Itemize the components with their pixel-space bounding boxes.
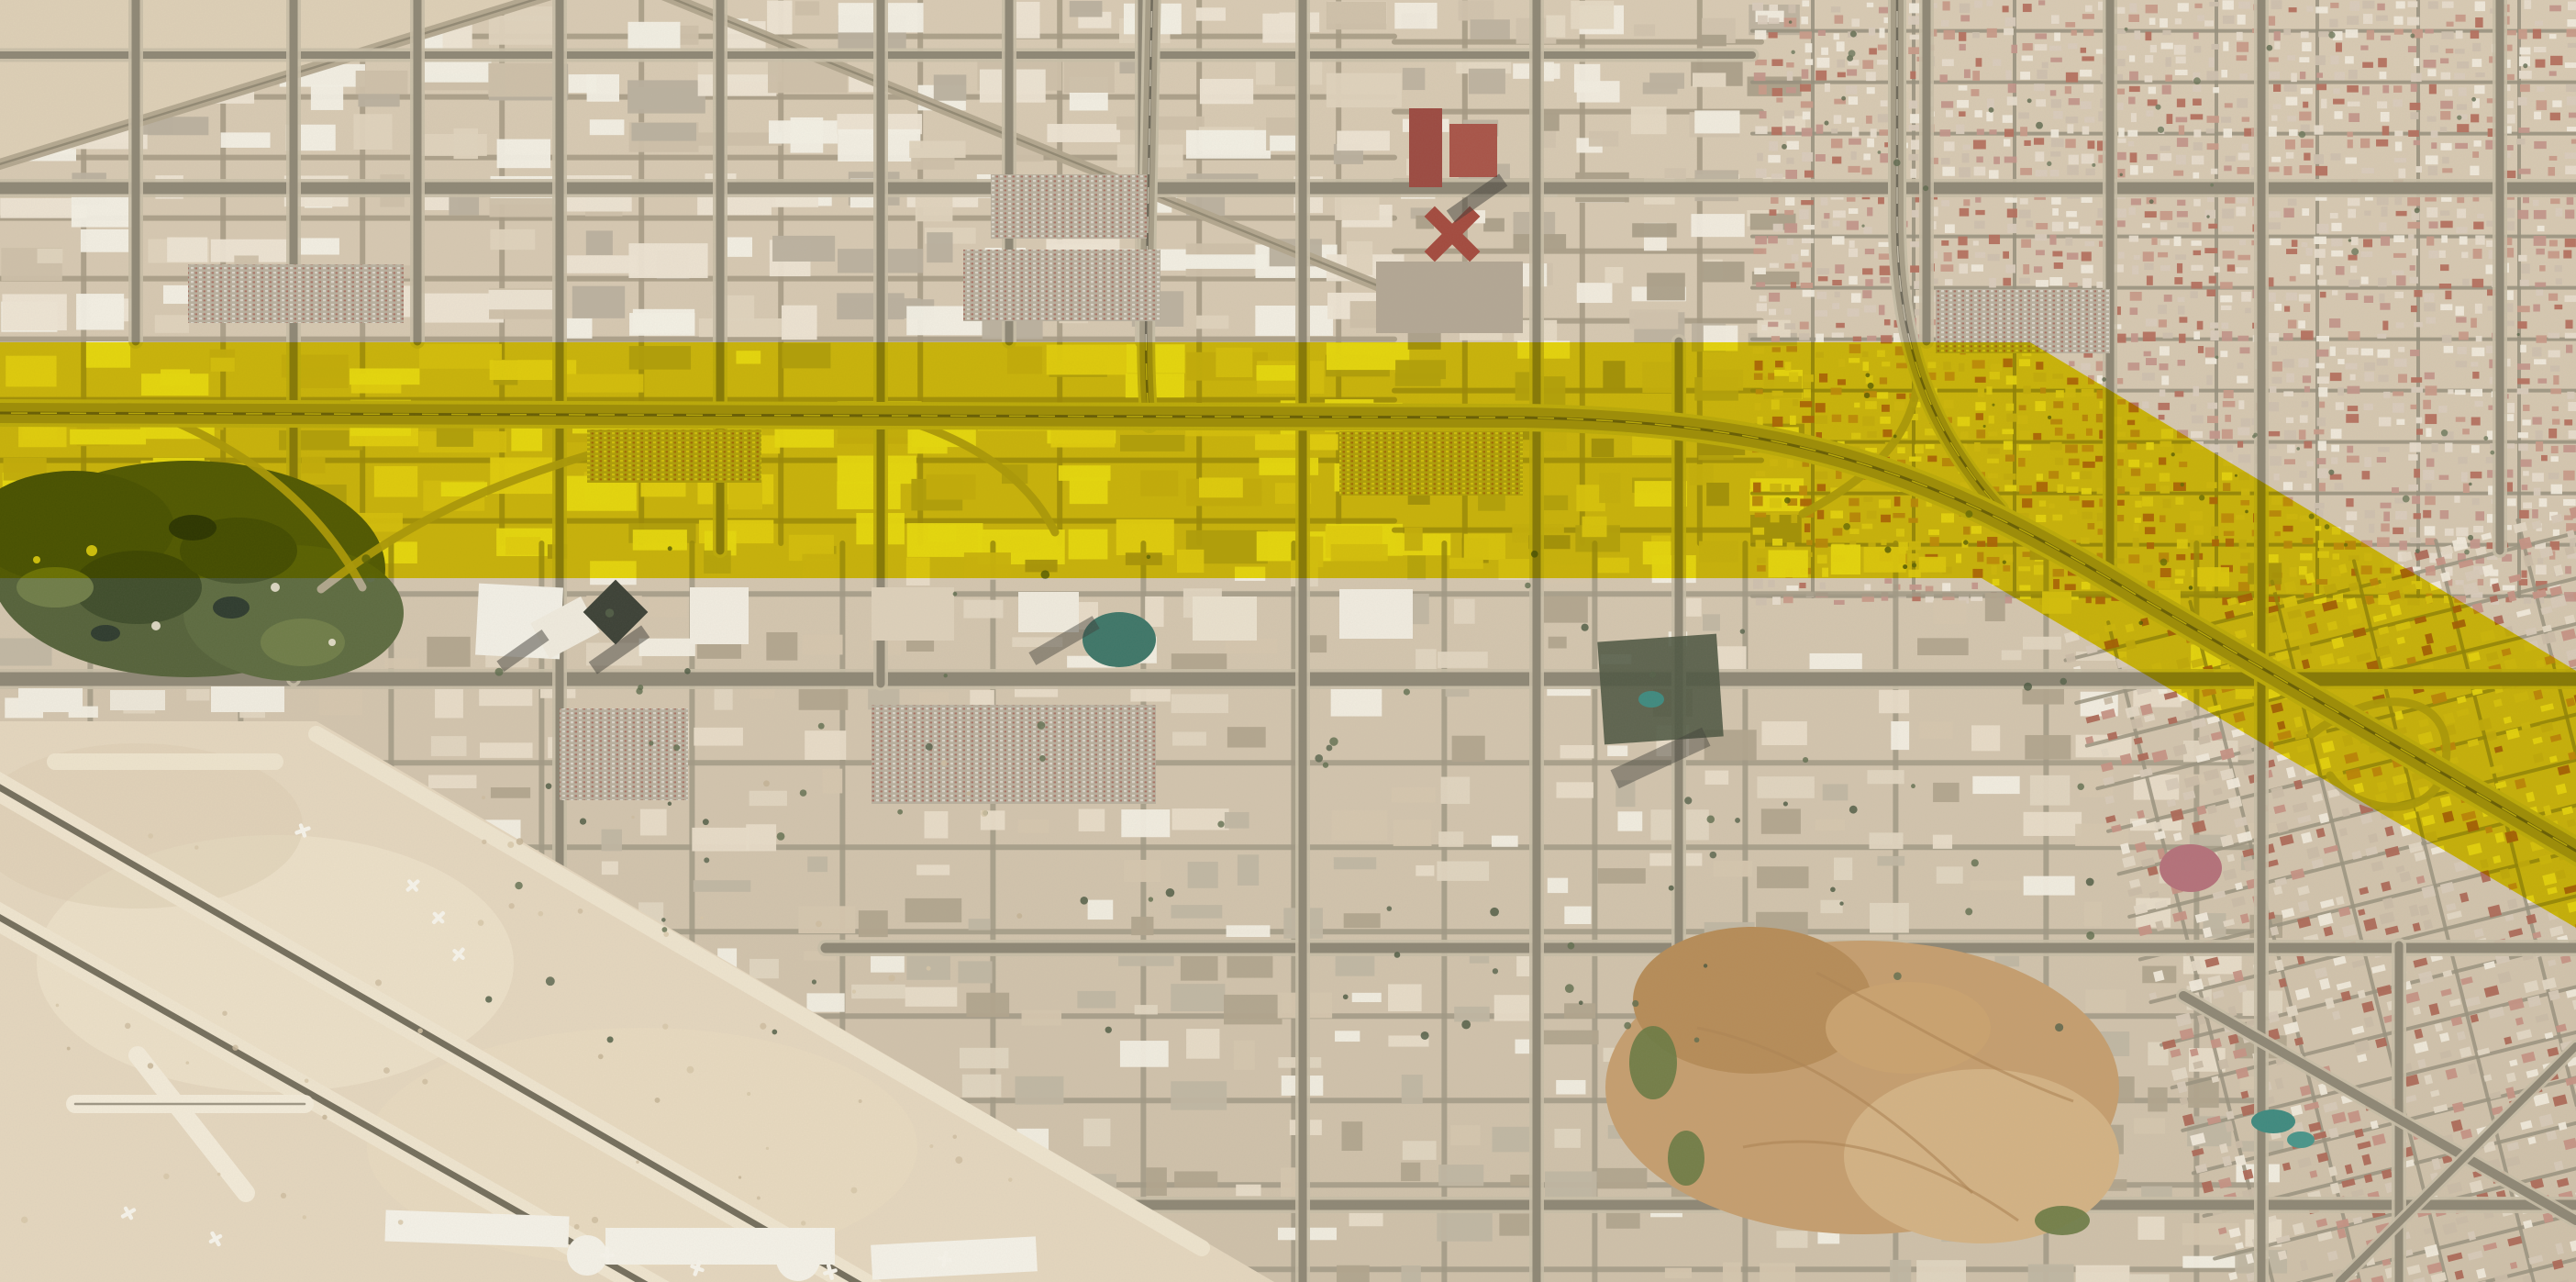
satellite-map-viewport bbox=[0, 0, 2576, 1282]
satellite-aerial-image bbox=[0, 0, 2576, 1282]
